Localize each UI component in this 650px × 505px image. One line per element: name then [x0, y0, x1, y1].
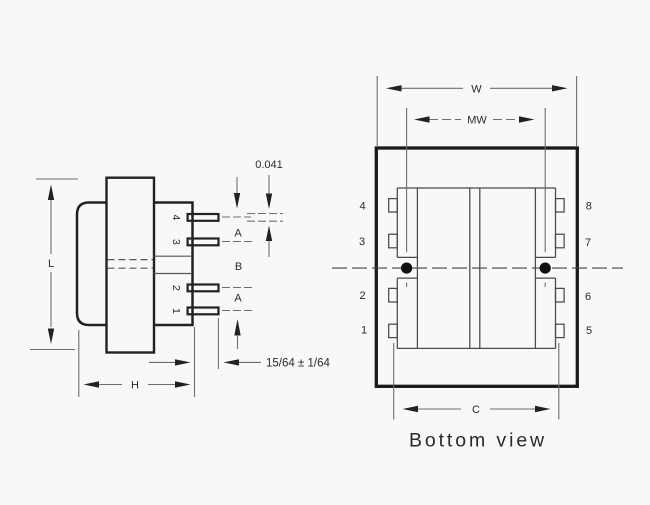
svg-text:0.041: 0.041: [255, 159, 283, 171]
svg-text:Bottom view: Bottom view: [409, 430, 547, 452]
svg-text:5: 5: [586, 325, 592, 337]
svg-text:1: 1: [361, 325, 367, 337]
svg-text:2: 2: [359, 290, 365, 302]
svg-text:MW: MW: [467, 115, 487, 127]
svg-text:L: L: [48, 258, 54, 270]
svg-text:4: 4: [359, 200, 365, 212]
svg-text:3: 3: [170, 239, 182, 245]
svg-text:6: 6: [585, 291, 591, 303]
svg-text:4: 4: [170, 214, 182, 220]
svg-text:2: 2: [170, 285, 182, 291]
svg-text:A: A: [234, 228, 242, 240]
svg-text:1: 1: [170, 308, 182, 314]
svg-text:W: W: [471, 83, 482, 95]
svg-text:B: B: [235, 261, 242, 273]
svg-text:3: 3: [359, 236, 365, 248]
svg-text:7: 7: [585, 237, 591, 249]
svg-text:15/64 ± 1/64: 15/64 ± 1/64: [266, 358, 330, 370]
svg-text:8: 8: [586, 200, 592, 212]
svg-text:C: C: [472, 404, 480, 416]
svg-text:H: H: [131, 380, 139, 392]
svg-text:A: A: [234, 293, 242, 305]
